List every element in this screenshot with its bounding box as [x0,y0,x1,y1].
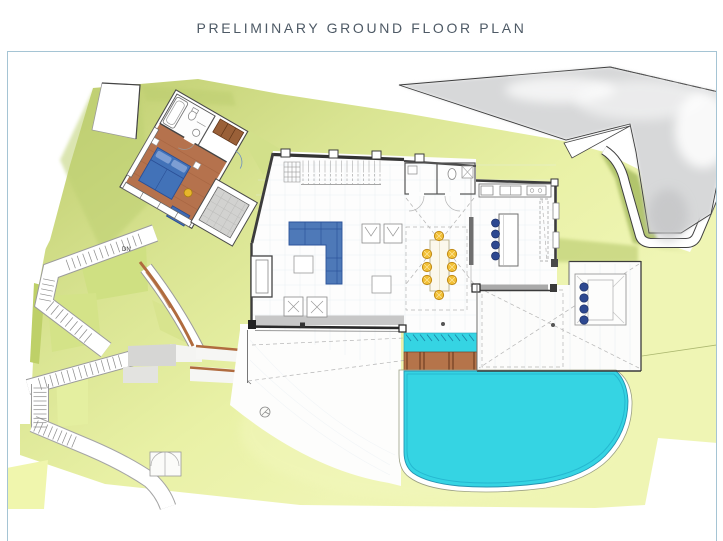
svg-text:DN: DN [122,247,131,253]
